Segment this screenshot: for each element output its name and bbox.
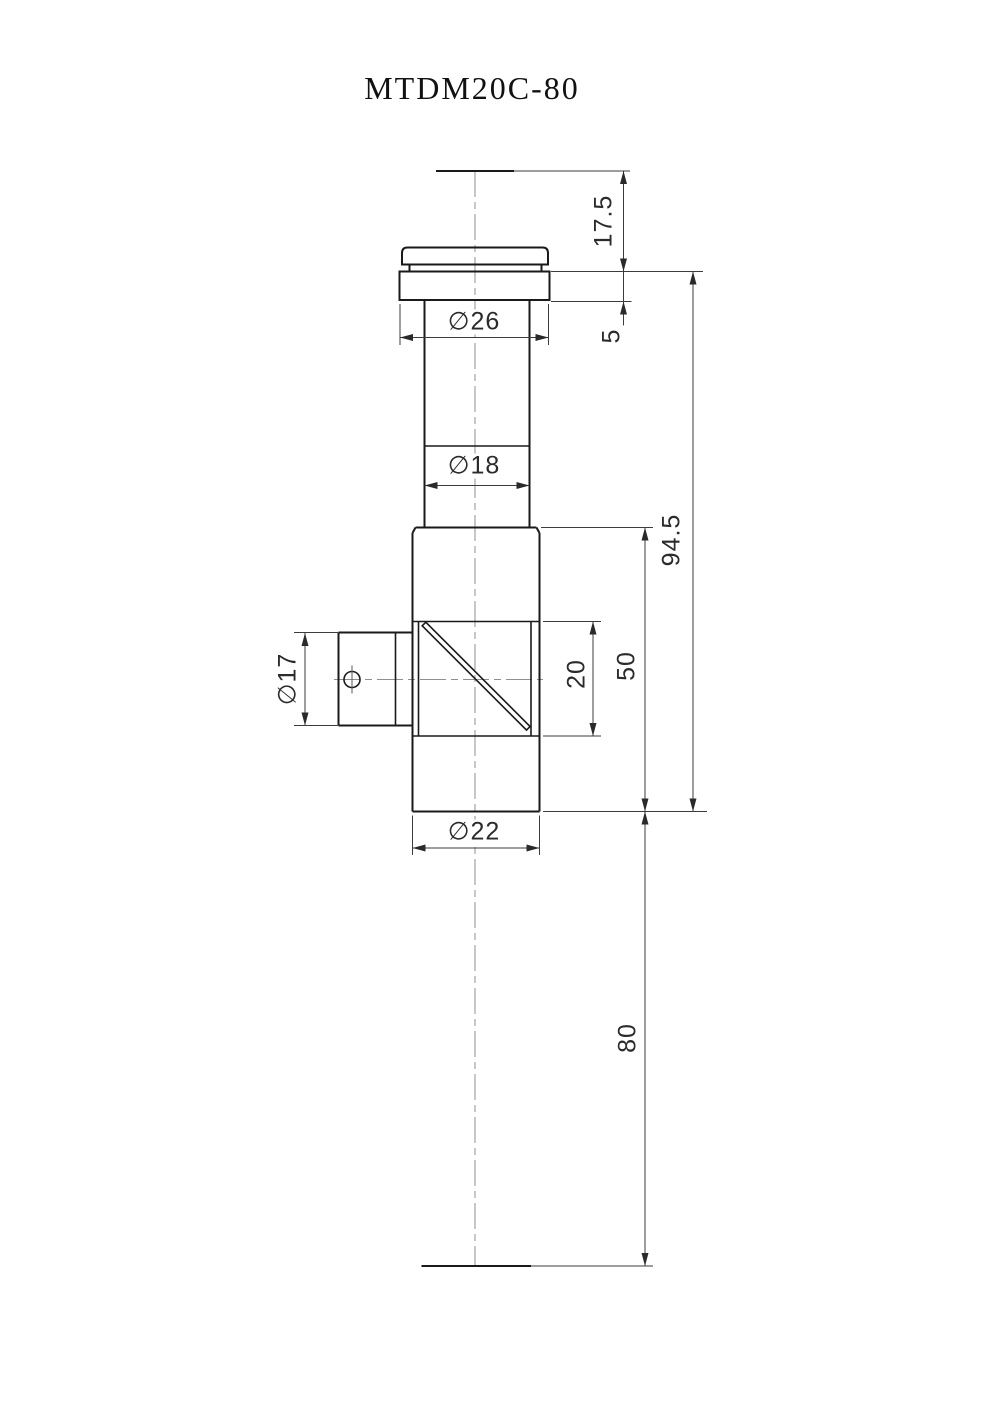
dim-label-body-diameter: ∅22 xyxy=(445,820,504,845)
dim-label-side-port-diameter: ∅17 xyxy=(276,650,301,709)
prism-mirror xyxy=(422,622,530,730)
drawing-sheet: MTDM20C-80 ∅26 ∅18 ∅22 17.5 5 ∅17 20 50 … xyxy=(0,0,992,1403)
body-chamfer-right xyxy=(537,528,540,534)
drawing-canvas xyxy=(0,0,992,1403)
dim-label-flange-thickness: 5 xyxy=(600,326,625,347)
dim-label-tube-diameter: ∅18 xyxy=(445,454,504,479)
body-chamfer-left xyxy=(413,528,416,534)
drawing-title: MTDM20C-80 xyxy=(364,72,580,104)
center-lines xyxy=(334,171,543,1266)
dim-label-cap-height: 17.5 xyxy=(592,192,617,251)
mirror-strip xyxy=(422,622,530,730)
dim-label-lower-extension-length: 80 xyxy=(616,1020,641,1056)
dim-label-body-section-length: 50 xyxy=(615,648,640,684)
dim-label-flange-diameter: ∅26 xyxy=(445,310,504,335)
dim-label-prism-window-height: 20 xyxy=(565,656,590,692)
dim-label-upper-section-length: 94.5 xyxy=(660,511,685,570)
